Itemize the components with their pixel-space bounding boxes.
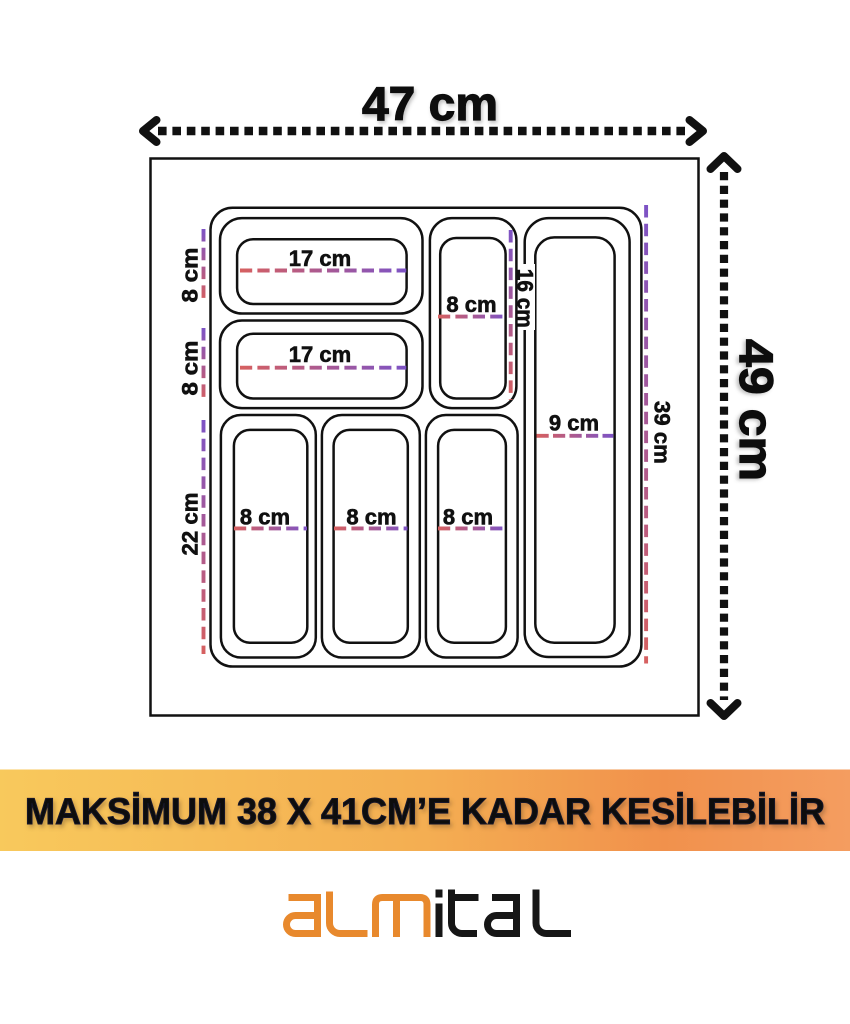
- svg-text:22 cm: 22 cm: [177, 493, 202, 556]
- svg-text:MAKSİMUM 38 X 41CM’E KADAR KES: MAKSİMUM 38 X 41CM’E KADAR KESİLEBİLİR: [25, 791, 825, 832]
- svg-text:8 cm: 8 cm: [177, 341, 202, 396]
- svg-text:17 cm: 17 cm: [289, 246, 351, 271]
- svg-text:39 cm: 39 cm: [650, 401, 675, 464]
- svg-text:47 cm: 47 cm: [362, 77, 498, 130]
- svg-text:8 cm: 8 cm: [443, 505, 493, 530]
- svg-text:9 cm: 9 cm: [549, 411, 599, 436]
- svg-text:17 cm: 17 cm: [289, 342, 351, 367]
- svg-text:8 cm: 8 cm: [240, 505, 290, 530]
- svg-text:16 cm: 16 cm: [513, 269, 538, 328]
- svg-text:8 cm: 8 cm: [446, 292, 496, 317]
- svg-text:49 cm: 49 cm: [730, 339, 783, 481]
- svg-text:8 cm: 8 cm: [177, 248, 202, 303]
- svg-text:8 cm: 8 cm: [346, 505, 396, 530]
